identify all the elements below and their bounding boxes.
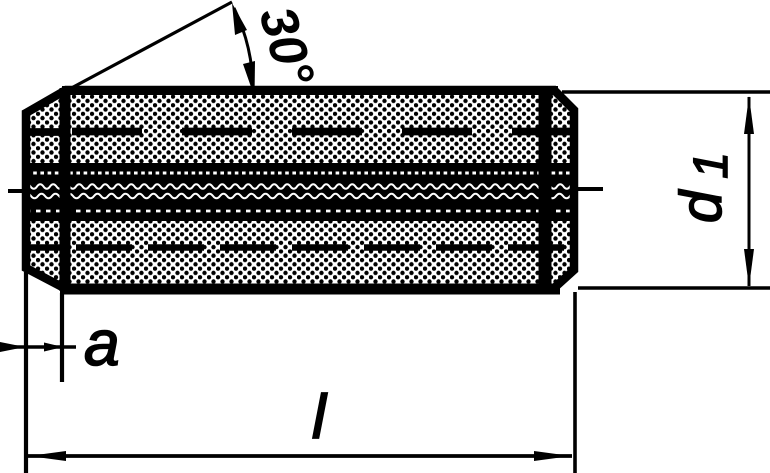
svg-text:l: l: [312, 383, 328, 452]
svg-text:a: a: [84, 307, 120, 379]
